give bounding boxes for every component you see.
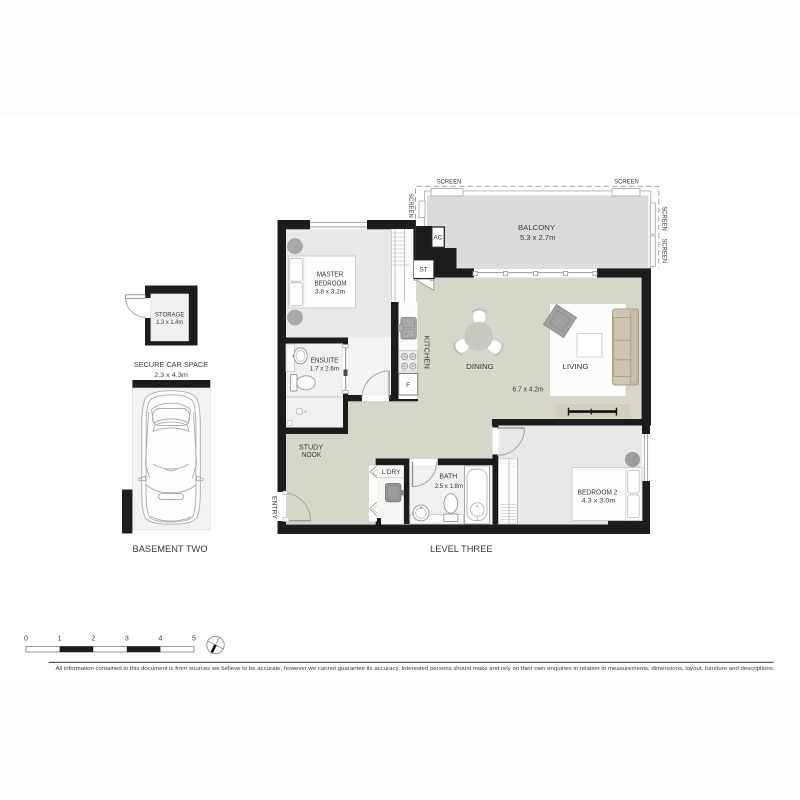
svg-text:SCREEN: SCREEN: [437, 179, 462, 186]
svg-text:L'DRY: L'DRY: [382, 469, 401, 476]
svg-text:LIVING: LIVING: [563, 362, 589, 371]
svg-text:4: 4: [158, 636, 162, 643]
svg-text:ENTRY: ENTRY: [270, 496, 277, 520]
svg-text:5: 5: [192, 636, 196, 643]
svg-text:BEDROOM: BEDROOM: [315, 280, 347, 287]
svg-text:SCREEN: SCREEN: [407, 193, 414, 218]
svg-text:AC: AC: [433, 235, 442, 242]
svg-text:SECURE CAR SPACE: SECURE CAR SPACE: [134, 360, 208, 369]
svg-text:2.3 x 4.3m: 2.3 x 4.3m: [154, 372, 188, 379]
svg-text:DINING: DINING: [466, 362, 494, 371]
svg-text:SCREEN: SCREEN: [614, 179, 639, 186]
svg-text:6.7 x 4.2m: 6.7 x 4.2m: [513, 387, 544, 394]
svg-text:LEVEL THREE: LEVEL THREE: [430, 543, 493, 554]
svg-text:BASEMENT TWO: BASEMENT TWO: [133, 543, 208, 554]
svg-text:2: 2: [91, 636, 95, 643]
svg-text:NOOK: NOOK: [302, 452, 322, 459]
svg-text:SCREEN: SCREEN: [660, 206, 667, 231]
svg-text:1.7 x 2.6m: 1.7 x 2.6m: [310, 366, 340, 373]
svg-text:3: 3: [125, 636, 129, 643]
svg-text:ENSUITE: ENSUITE: [311, 357, 339, 364]
svg-text:F: F: [406, 382, 410, 389]
svg-text:STORAGE: STORAGE: [155, 311, 185, 318]
svg-text:KITCHEN: KITCHEN: [423, 336, 430, 369]
svg-text:3.8 x 3.2m: 3.8 x 3.2m: [315, 288, 345, 295]
svg-text:5.3 x 2.7m: 5.3 x 2.7m: [520, 235, 556, 242]
svg-text:1.3 x 1.4m: 1.3 x 1.4m: [156, 319, 183, 326]
svg-text:BEDROOM 2: BEDROOM 2: [578, 490, 618, 497]
svg-text:ST: ST: [419, 267, 427, 274]
svg-text:All information contained in t: All information contained in this docume…: [56, 666, 775, 672]
svg-text:SCREEN: SCREEN: [660, 238, 667, 263]
svg-text:1: 1: [58, 636, 62, 643]
svg-text:MASTER: MASTER: [317, 271, 344, 278]
svg-text:0: 0: [24, 636, 28, 643]
svg-text:STUDY: STUDY: [299, 444, 324, 451]
svg-text:BATH: BATH: [439, 474, 457, 481]
svg-text:4.3 x 3.0m: 4.3 x 3.0m: [582, 497, 616, 504]
svg-text:BALCONY: BALCONY: [518, 225, 555, 232]
svg-text:2.5 x 1.8m: 2.5 x 1.8m: [435, 483, 464, 490]
